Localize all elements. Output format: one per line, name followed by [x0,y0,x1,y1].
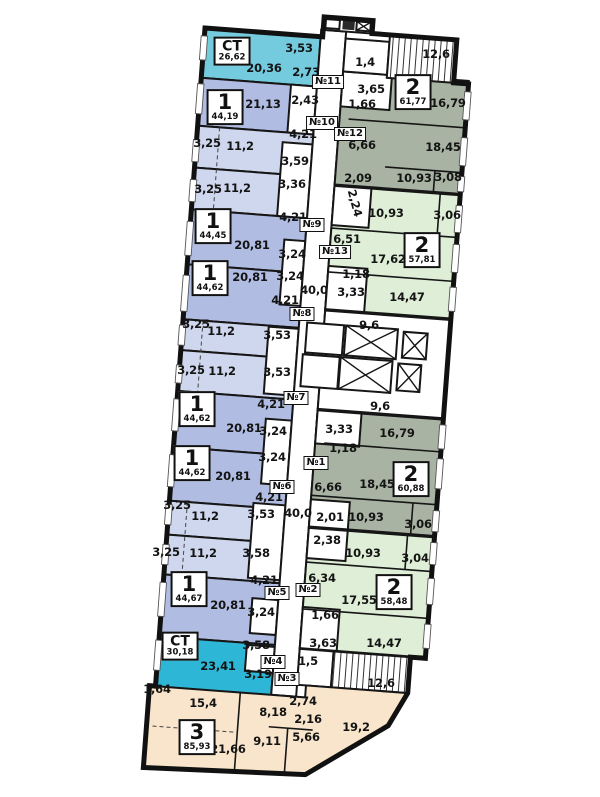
dimension-label: 16,79 [430,96,465,110]
dimension-label: 2,38 [313,533,341,547]
dimension-label: 16,79 [379,426,414,440]
dimension-label: 14,47 [366,636,401,650]
dimension-label: 8,18 [259,705,287,719]
dimension-label: 3,33 [337,285,365,299]
dimension-label: 3,63 [309,636,337,650]
apartment-area: 60,88 [398,485,425,495]
dimension-label: 23,41 [200,659,235,673]
dimension-label: 17,55 [341,593,376,607]
dimension-label: 3,58 [242,546,270,560]
dimension-label: 40,0 [300,283,328,297]
apartment-area: 44,62 [179,469,206,479]
dimension-label: 18,45 [425,140,460,154]
apartment-type: 1 [179,448,206,469]
dimension-label: 21,13 [245,97,280,111]
unit-number-label: №12 [334,127,366,141]
dimension-label: 5,66 [292,730,320,744]
unit-number-label: №3 [275,672,300,686]
dimension-label: 3,24 [259,424,287,438]
dimension-label: 17,62 [370,252,405,266]
dimension-label: 2,24 [345,188,366,218]
dimension-label: 1,66 [311,608,339,622]
apartment-type: 1 [212,92,239,113]
dimension-label: 10,93 [345,546,380,560]
dimension-label: 11,2 [226,139,254,153]
dimension-label: 3,25 [194,182,222,196]
unit-number-label: №9 [300,218,325,232]
dimension-label: 1,4 [355,55,375,69]
apartment-type: 1 [200,211,227,232]
dimension-label: 4,21 [271,293,299,307]
dimension-label: 3,25 [193,136,221,150]
dimension-label: 40,0 [284,506,312,520]
dimension-label: 9,6 [370,399,390,413]
dimension-label: 20,81 [232,270,267,284]
dimension-label: 3,04 [401,551,429,565]
dimension-label: 20,81 [234,238,269,252]
apartment-badge: 144,62 [174,445,211,481]
dimension-label: 20,81 [210,598,245,612]
dimension-label: 3,33 [325,422,353,436]
dimension-label: 1,18 [329,441,357,455]
dimension-label: 3,25 [182,317,210,331]
labels-layer: 3,5320,362,731,412,63,651,6616,7921,132,… [0,0,600,797]
unit-number-label: №1 [304,456,329,470]
dimension-label: 3,24 [247,605,275,619]
apartment-area: 85,93 [184,743,211,753]
dimension-label: 1,18 [342,267,370,281]
dimension-label: 2,01 [316,510,344,524]
floor-plan-page: 3,5320,362,731,412,63,651,6616,7921,132,… [0,0,600,797]
dimension-label: 11,2 [207,324,235,338]
apartment-type: 2 [398,464,425,485]
dimension-label: 12,6 [367,676,395,690]
apartment-type: 1 [197,263,224,284]
apartment-area: 57,81 [409,256,436,266]
dimension-label: 3,24 [258,450,286,464]
apartment-area: 44,62 [197,284,224,294]
dimension-label: 3,53 [285,41,313,55]
dimension-label: 19,2 [342,720,370,734]
dimension-label: 10,93 [368,206,403,220]
dimension-label: 21,66 [210,742,245,756]
dimension-label: 3,36 [278,177,306,191]
dimension-label: 2,09 [344,171,372,185]
unit-number-label: №8 [290,307,315,321]
dimension-label: 3,53 [263,328,291,342]
dimension-label: 2,16 [294,712,322,726]
apartment-badge: 258,48 [376,574,413,610]
dimension-label: 1,64 [143,682,171,696]
dimension-label: 3,08 [434,170,462,184]
apartment-type: 2 [381,577,408,598]
dimension-label: 11,2 [208,364,236,378]
dimension-label: 3,06 [433,208,461,222]
dimension-label: 10,93 [396,171,431,185]
dimension-label: 3,65 [357,82,385,96]
dimension-label: 3,58 [242,638,270,652]
dimension-label: 3,24 [278,247,306,261]
dimension-label: 3,59 [281,154,309,168]
dimension-label: 3,53 [247,507,275,521]
dimension-label: 1,66 [348,97,376,111]
dimension-label: 3,19 [244,667,272,681]
unit-number-label: №13 [319,245,351,259]
apartment-area: 44,67 [176,595,203,605]
dimension-label: 2,43 [291,93,319,107]
dimension-label: 3,24 [276,269,304,283]
apartment-type: 3 [184,722,211,743]
apartment-badge: СТ30,18 [162,632,199,661]
dimension-label: 11,2 [191,509,219,523]
dimension-label: 3,06 [404,517,432,531]
dimension-label: 3,25 [152,545,180,559]
dimension-label: 10,93 [348,510,383,524]
apartment-area: 61,77 [400,98,427,108]
dimension-label: 3,53 [263,365,291,379]
dimension-label: 11,2 [223,181,251,195]
apartment-area: 58,48 [381,598,408,608]
dimension-label: 2,74 [289,694,317,708]
apartment-area: 44,45 [200,232,227,242]
apartment-badge: 261,77 [395,74,432,110]
apartment-badge: 385,93 [179,719,216,755]
dimension-label: 4,21 [250,573,278,587]
apartment-badge: СТ26,62 [214,37,251,66]
apartment-area: 26,62 [219,54,246,64]
unit-number-label: №4 [261,655,286,669]
dimension-label: 1,5 [298,654,318,668]
apartment-area: 44,19 [212,113,239,123]
apartment-badge: 144,45 [195,208,232,244]
dimension-label: 4,21 [257,397,285,411]
dimension-label: 11,2 [189,546,217,560]
apartment-area: 44,62 [184,415,211,425]
dimension-label: 6,66 [314,480,342,494]
apartment-type: 1 [176,574,203,595]
dimension-label: 12,6 [422,47,450,61]
dimension-label: 18,45 [359,477,394,491]
apartment-type: СТ [219,40,246,54]
dimension-label: 3,25 [163,498,191,512]
apartment-type: 1 [184,394,211,415]
dimension-label: 20,36 [246,61,281,75]
dimension-label: 15,4 [189,696,217,710]
unit-number-label: №5 [265,586,290,600]
unit-number-label: №6 [270,480,295,494]
apartment-badge: 144,62 [179,391,216,427]
dimension-label: 14,47 [389,290,424,304]
dimension-label: 20,81 [226,421,261,435]
unit-number-label: №7 [284,391,309,405]
apartment-type: 2 [400,77,427,98]
apartment-badge: 144,67 [171,571,208,607]
unit-number-label: №11 [312,75,344,89]
dimension-label: 9,11 [253,734,281,748]
apartment-badge: 144,19 [207,89,244,125]
apartment-type: 2 [409,235,436,256]
apartment-type: СТ [167,635,194,649]
apartment-badge: 257,81 [404,232,441,268]
apartment-badge: 260,88 [393,461,430,497]
unit-number-label: №2 [296,583,321,597]
apartment-area: 30,18 [167,649,194,659]
dimension-label: 6,51 [333,232,361,246]
dimension-label: 9,6 [359,318,379,332]
dimension-label: 20,81 [215,469,250,483]
dimension-label: 3,25 [177,363,205,377]
apartment-badge: 144,62 [192,260,229,296]
